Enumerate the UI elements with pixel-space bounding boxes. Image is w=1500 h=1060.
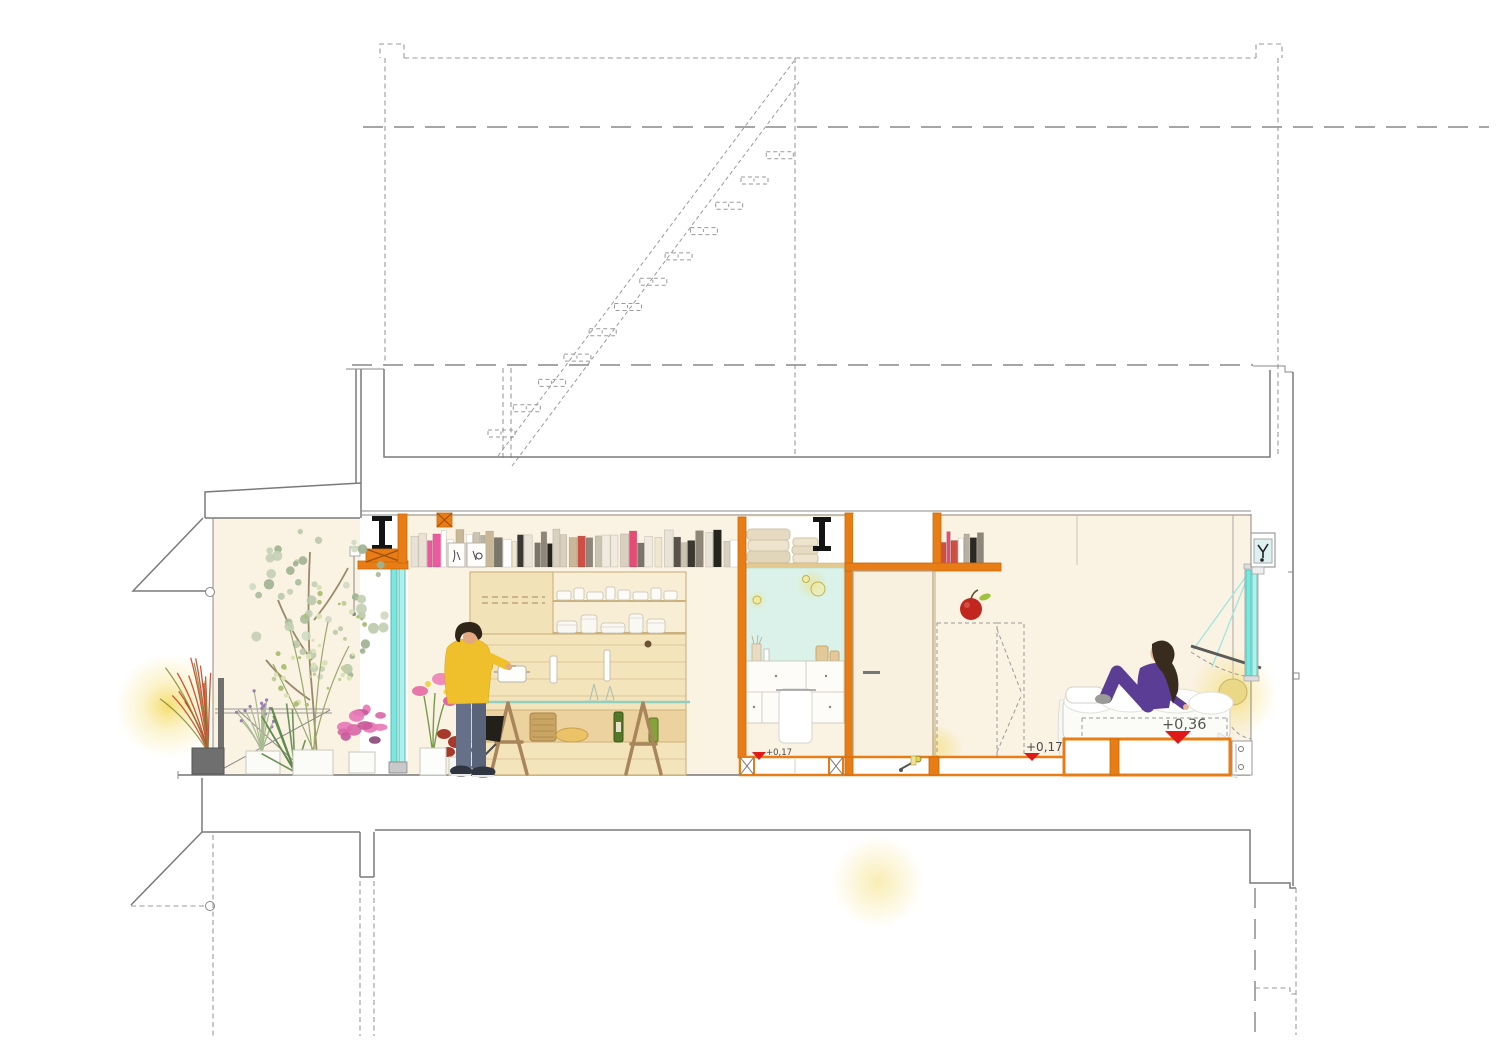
white-pot: [349, 752, 375, 773]
window-pane: [1246, 570, 1251, 676]
framed-prints: [448, 543, 486, 567]
mirror-light: [803, 576, 810, 583]
gray-planter: [192, 748, 224, 774]
jeans: [456, 700, 471, 768]
kitchen-unit: [466, 572, 691, 776]
knob: [645, 641, 652, 648]
level-label: +0,36: [1162, 717, 1206, 733]
steel-i-beam: [372, 516, 392, 521]
section-drawing: +0,17 +0,17 +0,36: [0, 0, 1500, 1060]
apple-decor: [960, 598, 982, 620]
glazing-pane: [391, 568, 397, 773]
diffuser: [752, 644, 761, 661]
mirror-light: [811, 582, 825, 596]
hand: [1183, 704, 1189, 710]
plant-pot: [420, 748, 446, 775]
orange-post: [738, 517, 746, 758]
door-handle: [863, 671, 880, 674]
section-drawing-canvas: +0,17 +0,17 +0,36: [0, 0, 1500, 1060]
canister: [830, 651, 839, 661]
glazing-pane: [399, 568, 405, 773]
canister: [816, 646, 828, 661]
faucet: [604, 650, 610, 681]
steel-i-beam: [813, 517, 831, 522]
door-hardware-bottom: [389, 762, 407, 773]
white-pot: [293, 750, 333, 775]
level-label: +0,17: [1026, 740, 1063, 754]
window-pane: [1252, 570, 1257, 676]
sock: [1095, 694, 1111, 704]
orange-post: [933, 513, 941, 570]
mirror-light: [753, 596, 761, 604]
awning-hinge: [206, 588, 215, 597]
wall-fixture: [1232, 741, 1252, 775]
hand-towel: [779, 689, 812, 743]
balcony-wall: [213, 518, 360, 775]
level-label: +0,17: [766, 748, 792, 758]
bowl: [556, 728, 588, 742]
interior-door: [853, 571, 933, 758]
bottle: [550, 656, 557, 683]
orange-shelf: [845, 563, 1001, 571]
platform-low: [740, 757, 1064, 775]
hand: [506, 664, 512, 670]
bed-platform: [1064, 739, 1230, 775]
orange-post: [398, 514, 407, 563]
storage-box: [853, 514, 933, 563]
sweater: [445, 639, 493, 704]
lower-floor-glow: [832, 836, 924, 928]
orange-post: [845, 513, 853, 763]
cooking-pot: [498, 666, 526, 682]
